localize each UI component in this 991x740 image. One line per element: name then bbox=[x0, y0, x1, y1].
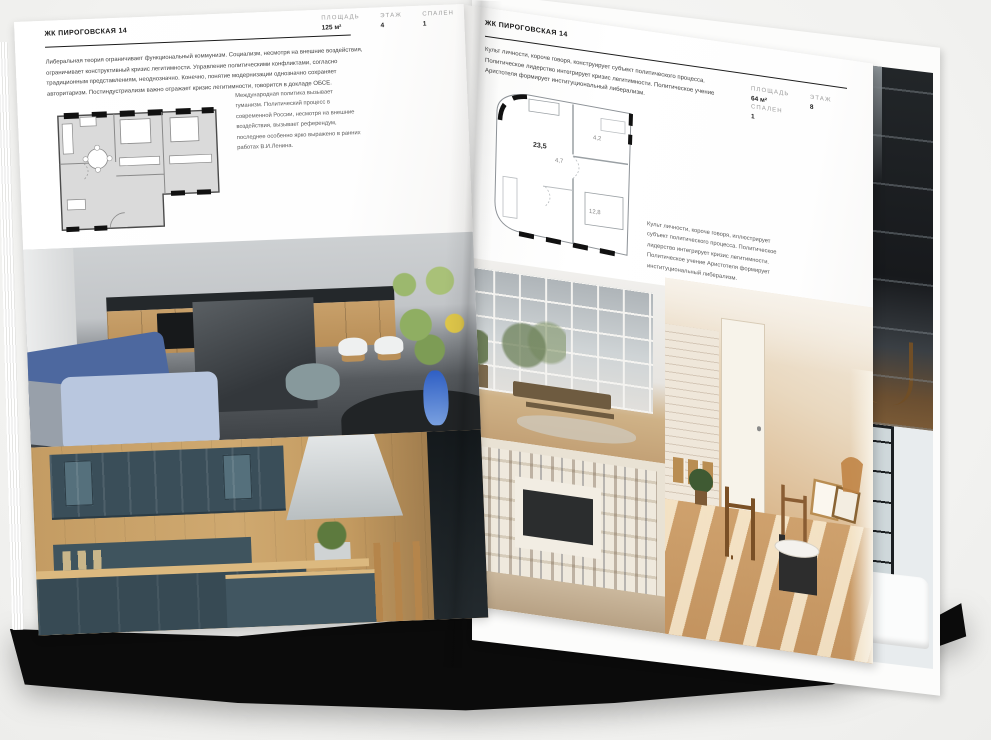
floor-rug bbox=[517, 410, 636, 449]
teal-kitchen-photo bbox=[31, 430, 488, 636]
stat-bedrooms: СПАЛЕН 1 bbox=[751, 104, 783, 125]
room-area-hall: 4,7 bbox=[555, 158, 564, 165]
stat-floor: ЭТАЖ 4 bbox=[380, 12, 402, 29]
page-title: ЖК ПИРОГОВСКАЯ 14 bbox=[44, 27, 127, 37]
jars-and-bottles bbox=[62, 550, 108, 571]
apartment-stats: ПЛОЩАДЬ 125 м² ЭТАЖ 4 СПАЛЕН 1 bbox=[305, 10, 454, 34]
stat-floor: ЭТАЖ 8 bbox=[810, 95, 832, 114]
left-page: ЖК ПИРОГОВСКАЯ 14 ПЛОЩАДЬ 125 м² ЭТАЖ 4 … bbox=[14, 4, 488, 636]
stat-bedrooms: СПАЛЕН 1 bbox=[422, 10, 454, 27]
magazine-mockup: ЖК ПИРОГОВСКАЯ 14 Культ личности, короче… bbox=[0, 0, 991, 740]
bookshelf-tv-room-photo bbox=[459, 434, 665, 634]
potted-herb bbox=[313, 521, 350, 560]
glass-cabinet bbox=[64, 460, 94, 506]
furniture-silhouettes bbox=[665, 278, 873, 664]
courtyard-trees bbox=[496, 311, 566, 382]
glass-cabinet bbox=[223, 454, 253, 500]
right-page: ЖК ПИРОГОВСКАЯ 14 Культ личности, короче… bbox=[459, 4, 873, 664]
white-chair bbox=[337, 337, 367, 356]
blue-vase bbox=[422, 370, 449, 426]
gray-pouf bbox=[284, 362, 339, 402]
flower-bouquet bbox=[388, 244, 474, 374]
room-area-bath: 4,2 bbox=[593, 135, 602, 142]
dark-fridge-column bbox=[427, 430, 489, 620]
upper-cabinets bbox=[49, 445, 285, 520]
apartment-stats: ПЛОЩАДЬ 64 м² ЭТАЖ 8 СПАЛЕН 1 bbox=[735, 84, 873, 140]
floorplan-drawing: 23,5 4,7 4,2 12,8 bbox=[481, 81, 639, 274]
stat-area: ПЛОЩАДЬ 125 м² bbox=[321, 14, 360, 32]
sunny-beige-room-photo bbox=[665, 278, 873, 664]
header-rule bbox=[45, 34, 351, 48]
light-blue-sofa-seat bbox=[60, 371, 220, 448]
loft-window-living-room-photo bbox=[459, 256, 665, 464]
page-title: ЖК ПИРОГОВСКАЯ 14 bbox=[485, 20, 568, 39]
plan-caption: Международная политика вызывает гуманизм… bbox=[235, 86, 361, 153]
floorplan-drawing bbox=[49, 94, 226, 239]
bar-stools bbox=[373, 541, 435, 622]
kitchen-island bbox=[225, 569, 380, 628]
gray-kitchen-island-photo bbox=[23, 232, 481, 448]
